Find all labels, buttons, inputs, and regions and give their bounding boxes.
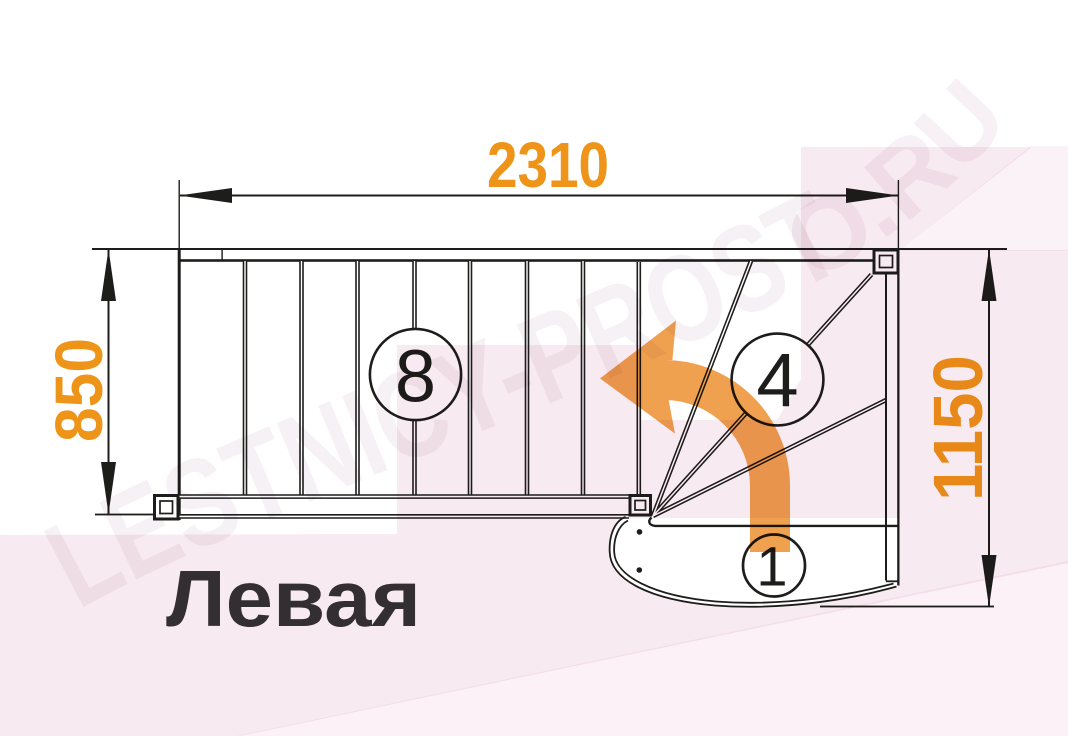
svg-text:Левая: Левая <box>166 554 421 643</box>
svg-text:850: 850 <box>42 338 117 442</box>
svg-text:2310: 2310 <box>487 129 609 201</box>
